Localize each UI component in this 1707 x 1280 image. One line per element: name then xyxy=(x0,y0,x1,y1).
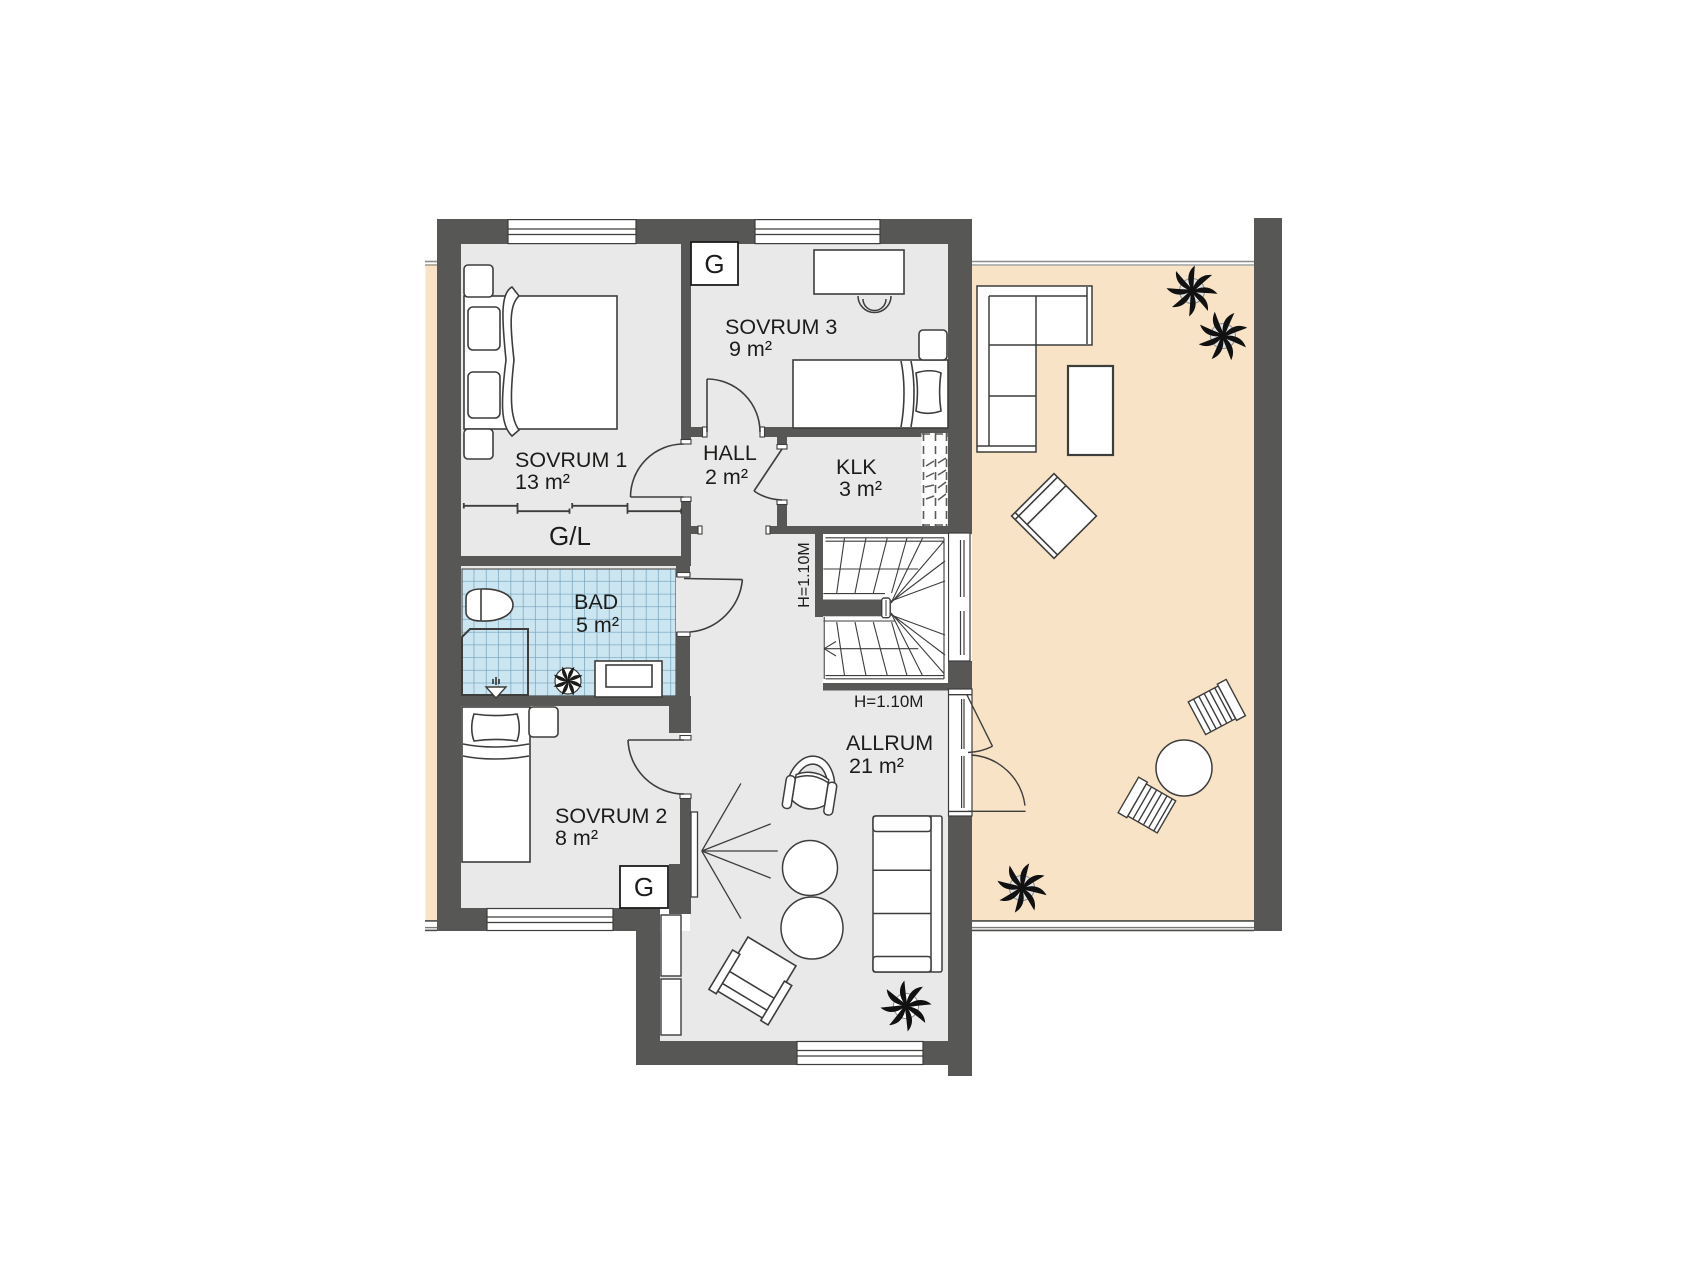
svg-text:BAD: BAD xyxy=(574,590,618,614)
svg-text:2 m²: 2 m² xyxy=(705,465,748,489)
svg-text:SOVRUM 3: SOVRUM 3 xyxy=(725,315,837,339)
svg-text:KLK: KLK xyxy=(836,455,877,479)
svg-text:HALL: HALL xyxy=(703,441,757,465)
svg-text:5 m²: 5 m² xyxy=(576,613,619,637)
svg-text:13 m²: 13 m² xyxy=(515,470,570,494)
svg-text:8 m²: 8 m² xyxy=(555,826,598,850)
svg-text:9 m²: 9 m² xyxy=(729,337,772,361)
svg-text:SOVRUM 1: SOVRUM 1 xyxy=(515,448,627,472)
svg-text:H=1.10M: H=1.10M xyxy=(854,692,923,711)
svg-text:SOVRUM 2: SOVRUM 2 xyxy=(555,804,667,828)
svg-text:ALLRUM: ALLRUM xyxy=(846,731,933,755)
svg-text:H=1.10M: H=1.10M xyxy=(796,542,813,607)
svg-text:21 m²: 21 m² xyxy=(849,754,904,778)
svg-text:G: G xyxy=(704,249,724,279)
svg-text:3 m²: 3 m² xyxy=(839,477,882,501)
svg-text:G/L: G/L xyxy=(549,521,591,551)
svg-text:G: G xyxy=(634,872,654,902)
